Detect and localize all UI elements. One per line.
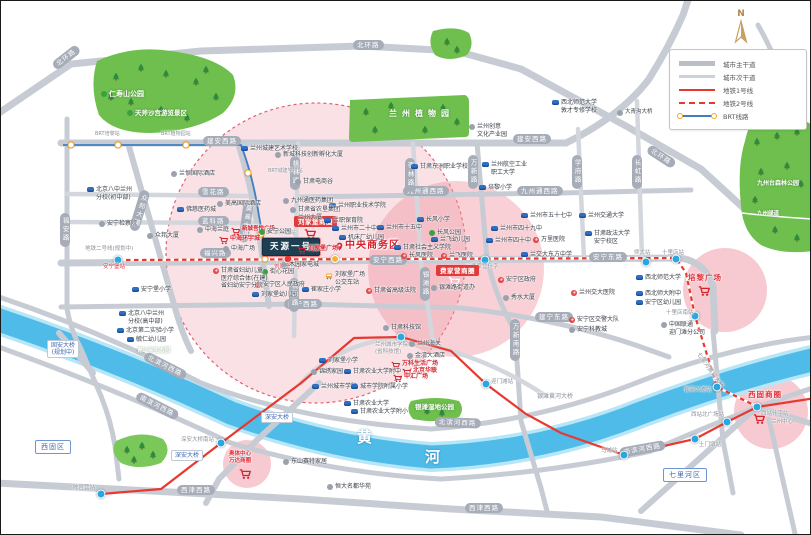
station-dot <box>68 142 75 149</box>
poi-label: 甘肃农业大学 <box>344 400 389 408</box>
poi-label: 安宁科教城 <box>569 326 607 334</box>
building-icon <box>217 201 223 207</box>
poi-label: 中海广场 <box>223 245 255 253</box>
poi-label: 众邦大厦 <box>147 232 179 240</box>
poi-label: 长风小学 <box>417 216 450 224</box>
poi-label: 安宁检察院 <box>99 220 137 228</box>
road-label: 西津西路 <box>177 485 215 495</box>
poi-label: 兰州交通大学 <box>579 212 624 220</box>
school-icon <box>482 162 489 167</box>
poi-label: 中国联通迎门滩分公司 <box>661 321 705 336</box>
school-icon <box>87 187 94 192</box>
brt-swatch <box>679 115 715 117</box>
station-dot <box>482 380 491 389</box>
poi-label: 毓仁幼儿园 <box>127 336 166 344</box>
poi-label: 兰州市四十九中 <box>491 225 542 233</box>
school-icon <box>486 238 493 243</box>
school-icon <box>521 213 528 218</box>
road-label: 北滨河西路 <box>435 417 481 429</box>
school-icon <box>252 292 259 297</box>
poi-label: 甘肃东洲职业学校 <box>411 163 468 171</box>
legend-label: 城市主干道 <box>723 59 756 69</box>
park-label: 仁寿山公园 <box>101 90 144 99</box>
poi-label: 兰交大东方中学 <box>521 251 572 259</box>
poi-label: 城市学院附属小学 <box>351 383 408 391</box>
road-sub-swatch <box>679 75 715 78</box>
poi-label: 兰飞幼儿园 <box>431 236 470 244</box>
building-icon <box>275 152 281 158</box>
road-label: 万新南路 <box>510 319 520 361</box>
station-label: 地铁二号线(规划中) <box>85 246 133 253</box>
legend-panel: 城市主干道 城市次干道 地铁1号线 地铁2号线 BRT线路 <box>669 49 807 130</box>
poi-label: 北京八中兰州分校(高中部) <box>119 310 164 325</box>
legend-label: BRT线路 <box>723 111 748 121</box>
poi-label: 兰恒国际酒店 <box>171 170 215 178</box>
poi-label: 锦绣家园 <box>311 368 343 376</box>
station-label: 十里店站 <box>662 250 684 257</box>
building-icon <box>409 341 415 347</box>
legend-item-road-sub: 城市次干道 <box>679 70 797 83</box>
poi-label: 中海兰庭 <box>197 226 229 234</box>
mall-label: 中海环宇城 <box>219 235 260 245</box>
compass-needle-icon <box>729 19 753 47</box>
station-label: 十里店南站 <box>666 310 694 317</box>
school-icon <box>132 287 139 292</box>
bridge-label: 固安大桥(规划中) <box>47 340 79 358</box>
school-icon <box>479 185 486 190</box>
poi-label: 崔家庄小学 <box>302 286 341 294</box>
legend-label: 城市次干道 <box>723 72 756 82</box>
road-label: 九州通西路 <box>517 186 563 196</box>
legend-item-brt: BRT线路 <box>679 109 797 122</box>
school-icon <box>417 217 424 222</box>
hospital-icon <box>533 237 539 243</box>
poi-label: 安宁堡小学 <box>132 286 171 294</box>
station-label: 土门墩站 <box>699 442 721 449</box>
poi-label: 安宁区幼儿园 <box>636 299 681 307</box>
station-dot <box>620 451 629 460</box>
bridge-label: 深安大桥 <box>261 412 293 423</box>
business-district-label: 西固商圈 <box>748 390 782 399</box>
poi-label: 西北师范大学敦才专修学校 <box>552 99 597 114</box>
poi-label: 万里医院 <box>533 236 565 244</box>
building-icon <box>407 353 413 359</box>
building-icon <box>469 124 475 130</box>
station-dot <box>262 256 269 263</box>
building-icon <box>661 322 667 328</box>
school-icon <box>636 300 643 305</box>
school-icon <box>177 207 184 212</box>
compass: N <box>723 9 759 51</box>
school-icon <box>119 311 126 316</box>
station-label: 陈官营站 <box>73 485 95 492</box>
poi-label: 甘肃电商谷 <box>295 178 333 186</box>
building-icon <box>290 207 296 213</box>
school-icon <box>491 226 498 231</box>
poi-label: 佛慈医药城 <box>177 206 216 214</box>
station-label: 西站北广场站 <box>691 412 724 419</box>
building-icon <box>569 327 575 333</box>
poi-label: 兰州市四十中 <box>486 237 531 245</box>
park-label: 银滩湿地公园 <box>415 403 454 411</box>
park-label: 九州绿道 <box>757 211 779 218</box>
school-icon <box>411 164 418 169</box>
road-label: 北环路 <box>353 40 384 50</box>
building-icon <box>147 233 153 239</box>
school-icon <box>332 226 339 231</box>
building-icon <box>223 246 229 252</box>
building-icon <box>283 459 289 465</box>
road-label: 万新路 <box>468 155 478 189</box>
park-icon <box>101 91 107 97</box>
station-label: 兰州中心 <box>771 419 793 426</box>
poi-label: 恒大名都华苑 <box>327 483 371 491</box>
station-label: 马滩站 <box>601 448 618 455</box>
station-dot <box>183 142 190 149</box>
hospital-icon <box>498 277 504 283</box>
building-icon <box>283 198 289 204</box>
building-icon <box>171 171 177 177</box>
building-icon <box>295 179 301 185</box>
park-icon <box>259 229 265 235</box>
school-icon <box>521 252 528 257</box>
road-label: 北环路 <box>645 144 676 169</box>
road-main-swatch <box>679 61 715 66</box>
business-district-label: 培黎广场 <box>688 273 722 282</box>
river-label: 黄 <box>357 428 372 447</box>
hospital-icon <box>213 268 219 274</box>
poi-label: 安宁区政府 <box>498 276 536 284</box>
legend-item-metro1: 地铁1号线 <box>679 83 797 96</box>
poi-label: 安宁区交警大队 <box>569 316 619 324</box>
school-icon <box>117 328 124 333</box>
hospital-icon <box>569 317 575 323</box>
district-label: 西固区 <box>35 440 71 454</box>
poi-label: 兰州航空工业职工大学 <box>482 161 527 176</box>
poi-label: 培黎小学 <box>479 184 512 192</box>
bridge-label: 深安大桥 <box>171 450 203 461</box>
school-icon <box>377 225 384 230</box>
station-dot <box>331 255 339 263</box>
poi-label: 兰州交大医院 <box>571 289 615 297</box>
park-label: 天斧沙宫游览景区 <box>127 109 187 117</box>
legend-item-metro2: 地铁2号线 <box>679 96 797 109</box>
poi-label: 银滩路街道办 <box>431 284 475 292</box>
road-label: 蓝科路 <box>198 216 229 226</box>
station-label: 银滩黄河大桥 <box>537 393 573 401</box>
road-label: 南滨河西路 <box>134 391 179 421</box>
road-label: 西津西路 <box>465 503 503 513</box>
station-label: 崔家大滩站 <box>684 387 712 394</box>
road-label: 福安路 <box>60 213 70 247</box>
building-icon <box>281 262 287 268</box>
poi-label: 刘家堡小学 <box>319 357 358 365</box>
park-icon <box>127 110 133 116</box>
poi-label: 九州通医药集团 <box>283 197 333 205</box>
road-label: 雪花路 <box>198 187 229 197</box>
station-label: BRT培黎站 <box>95 131 120 137</box>
school-icon <box>319 358 326 363</box>
metro1-swatch <box>679 89 715 91</box>
building-icon <box>327 484 333 490</box>
building-icon <box>383 325 389 331</box>
hospital-icon <box>571 290 577 296</box>
station-dot <box>245 170 252 177</box>
park-label: 兰州植物园 <box>389 109 454 119</box>
road-label: 安宁东路 <box>589 252 627 262</box>
mall-label: 刘家堡广场 <box>297 245 338 255</box>
road-label: 长虹路 <box>632 155 642 189</box>
park-label: 九州台森林公园 <box>757 180 799 188</box>
poi-label: 甘肃省高级法院 <box>366 287 416 295</box>
map-canvas: 仁寿山公园天斧沙宫游览景区兰州植物园九州台森林公园九州绿道银滩湿地公园青少年生态… <box>0 0 811 535</box>
poi-label: 西北师范大学 <box>636 274 681 282</box>
poi-label: 刘家堡广场公交车站 <box>325 271 365 286</box>
poi-label: 兰州市五十七中 <box>521 212 572 220</box>
building-icon <box>617 110 623 116</box>
road-label: 建宁东路 <box>535 312 573 322</box>
poi-label: 兰州创意文化产业园 <box>469 123 507 138</box>
poi-label: 甘肃社会主义学院 <box>394 244 451 252</box>
station-label: BRT植物园站 <box>161 131 191 137</box>
station-label: 迎门滩站 <box>491 379 513 386</box>
school-icon <box>585 231 592 236</box>
poi-label: 甘肃科技馆 <box>383 324 421 332</box>
poi-label: 甘肃农业大学附小 <box>351 408 408 416</box>
station-dot <box>397 333 406 342</box>
business-district-label: 费家营商圈 <box>436 265 479 276</box>
poi-label: 安宁公园 <box>259 228 291 236</box>
school-icon <box>344 369 351 374</box>
building-icon <box>431 285 437 291</box>
school-icon <box>431 237 438 242</box>
road-label: 北滨河西路 <box>142 351 187 381</box>
station-dot <box>115 142 122 149</box>
poi-label: 兰飞医院 <box>441 252 473 260</box>
station-label: 安宁堡站 <box>103 264 125 271</box>
poi-label: 美高国际酒店 <box>217 200 261 208</box>
station-label: 师大站 <box>634 250 651 257</box>
station-dot <box>97 490 106 499</box>
road-label: 银滩路 <box>420 267 430 301</box>
station-dot <box>642 258 651 267</box>
school-icon <box>351 409 358 414</box>
metro2-swatch <box>679 102 715 104</box>
poi-label: 兰州市二十中 <box>332 225 377 233</box>
school-icon <box>344 401 351 406</box>
school-icon <box>241 146 248 151</box>
hospital-icon <box>401 253 407 259</box>
poi-label: 秀水大厦 <box>503 294 535 302</box>
cart-icon <box>753 413 765 425</box>
poi-label: 北京八中兰州分校(初中部) <box>87 186 132 201</box>
building-icon <box>99 221 105 227</box>
poi-label: 大青沟大桥 <box>617 109 653 116</box>
poi-label: 甘肃农业大学附中 <box>344 368 401 376</box>
school-icon <box>127 337 134 342</box>
poi-label: 兰州市十五中 <box>377 224 422 232</box>
road-label: 建安西路 <box>513 134 551 144</box>
poi-label: 甘肃政法大学安宁校区 <box>585 230 630 245</box>
cart-icon <box>698 285 710 297</box>
school-icon <box>339 235 346 240</box>
station-label: BRT城建学校站 <box>268 168 303 174</box>
legend-label: 地铁2号线 <box>723 98 753 108</box>
cbd-label: 中央商务区 <box>335 240 400 253</box>
poi-label: 金湾大酒店 <box>407 352 445 360</box>
road-label: 建安西路 <box>203 136 241 146</box>
poi-label: 新城科技创新孵化大厦 <box>275 151 343 159</box>
school-icon <box>579 213 586 218</box>
station-label: 深安大桥南站 <box>181 437 214 444</box>
poi-label: 刘家堡幼儿园 <box>252 291 297 299</box>
cart-icon <box>239 468 251 480</box>
building-icon <box>503 295 509 301</box>
poi-label: 甘肃省妇幼儿童医疗综合体(在建)省妇幼安宁分院 <box>213 267 268 290</box>
school-icon <box>552 100 559 105</box>
poi-label: 长风公园 <box>429 229 461 237</box>
legend-item-road-main: 城市主干道 <box>679 57 797 70</box>
poi-label: 北京第二实验小学 <box>117 327 174 335</box>
poi-label: 西北师大附中 <box>636 290 681 298</box>
school-icon <box>312 384 319 389</box>
school-icon <box>636 291 643 296</box>
hospital-icon <box>366 288 372 294</box>
poi-label: 机床厂幼儿园 <box>339 234 384 242</box>
hospital-icon <box>441 253 447 259</box>
building-icon <box>197 227 203 233</box>
river-label: 河 <box>425 448 440 467</box>
poi-label: 东山赛特家居 <box>283 458 327 466</box>
school-icon <box>636 275 643 280</box>
district-label: 七里河区 <box>663 468 707 482</box>
station-label: 西站什字站 <box>761 411 789 418</box>
business-district-label: 奥体中心万达商圈 <box>229 451 251 465</box>
compass-north-label: N <box>723 9 759 19</box>
building-icon <box>311 369 317 375</box>
poi-label: 兰州海关 <box>409 340 441 348</box>
school-icon <box>394 245 401 250</box>
park-icon <box>429 230 435 236</box>
poi-label: 甘肃省农垦集团兰州大厦 <box>290 206 340 221</box>
station-dot <box>713 383 722 392</box>
legend-label: 地铁1号线 <box>723 85 753 95</box>
road-label: 学府路 <box>572 155 582 189</box>
poi-label: 长风医院 <box>401 252 433 260</box>
station-dot <box>217 439 226 448</box>
school-icon <box>351 384 358 389</box>
road-label: 北环路 <box>51 44 81 71</box>
